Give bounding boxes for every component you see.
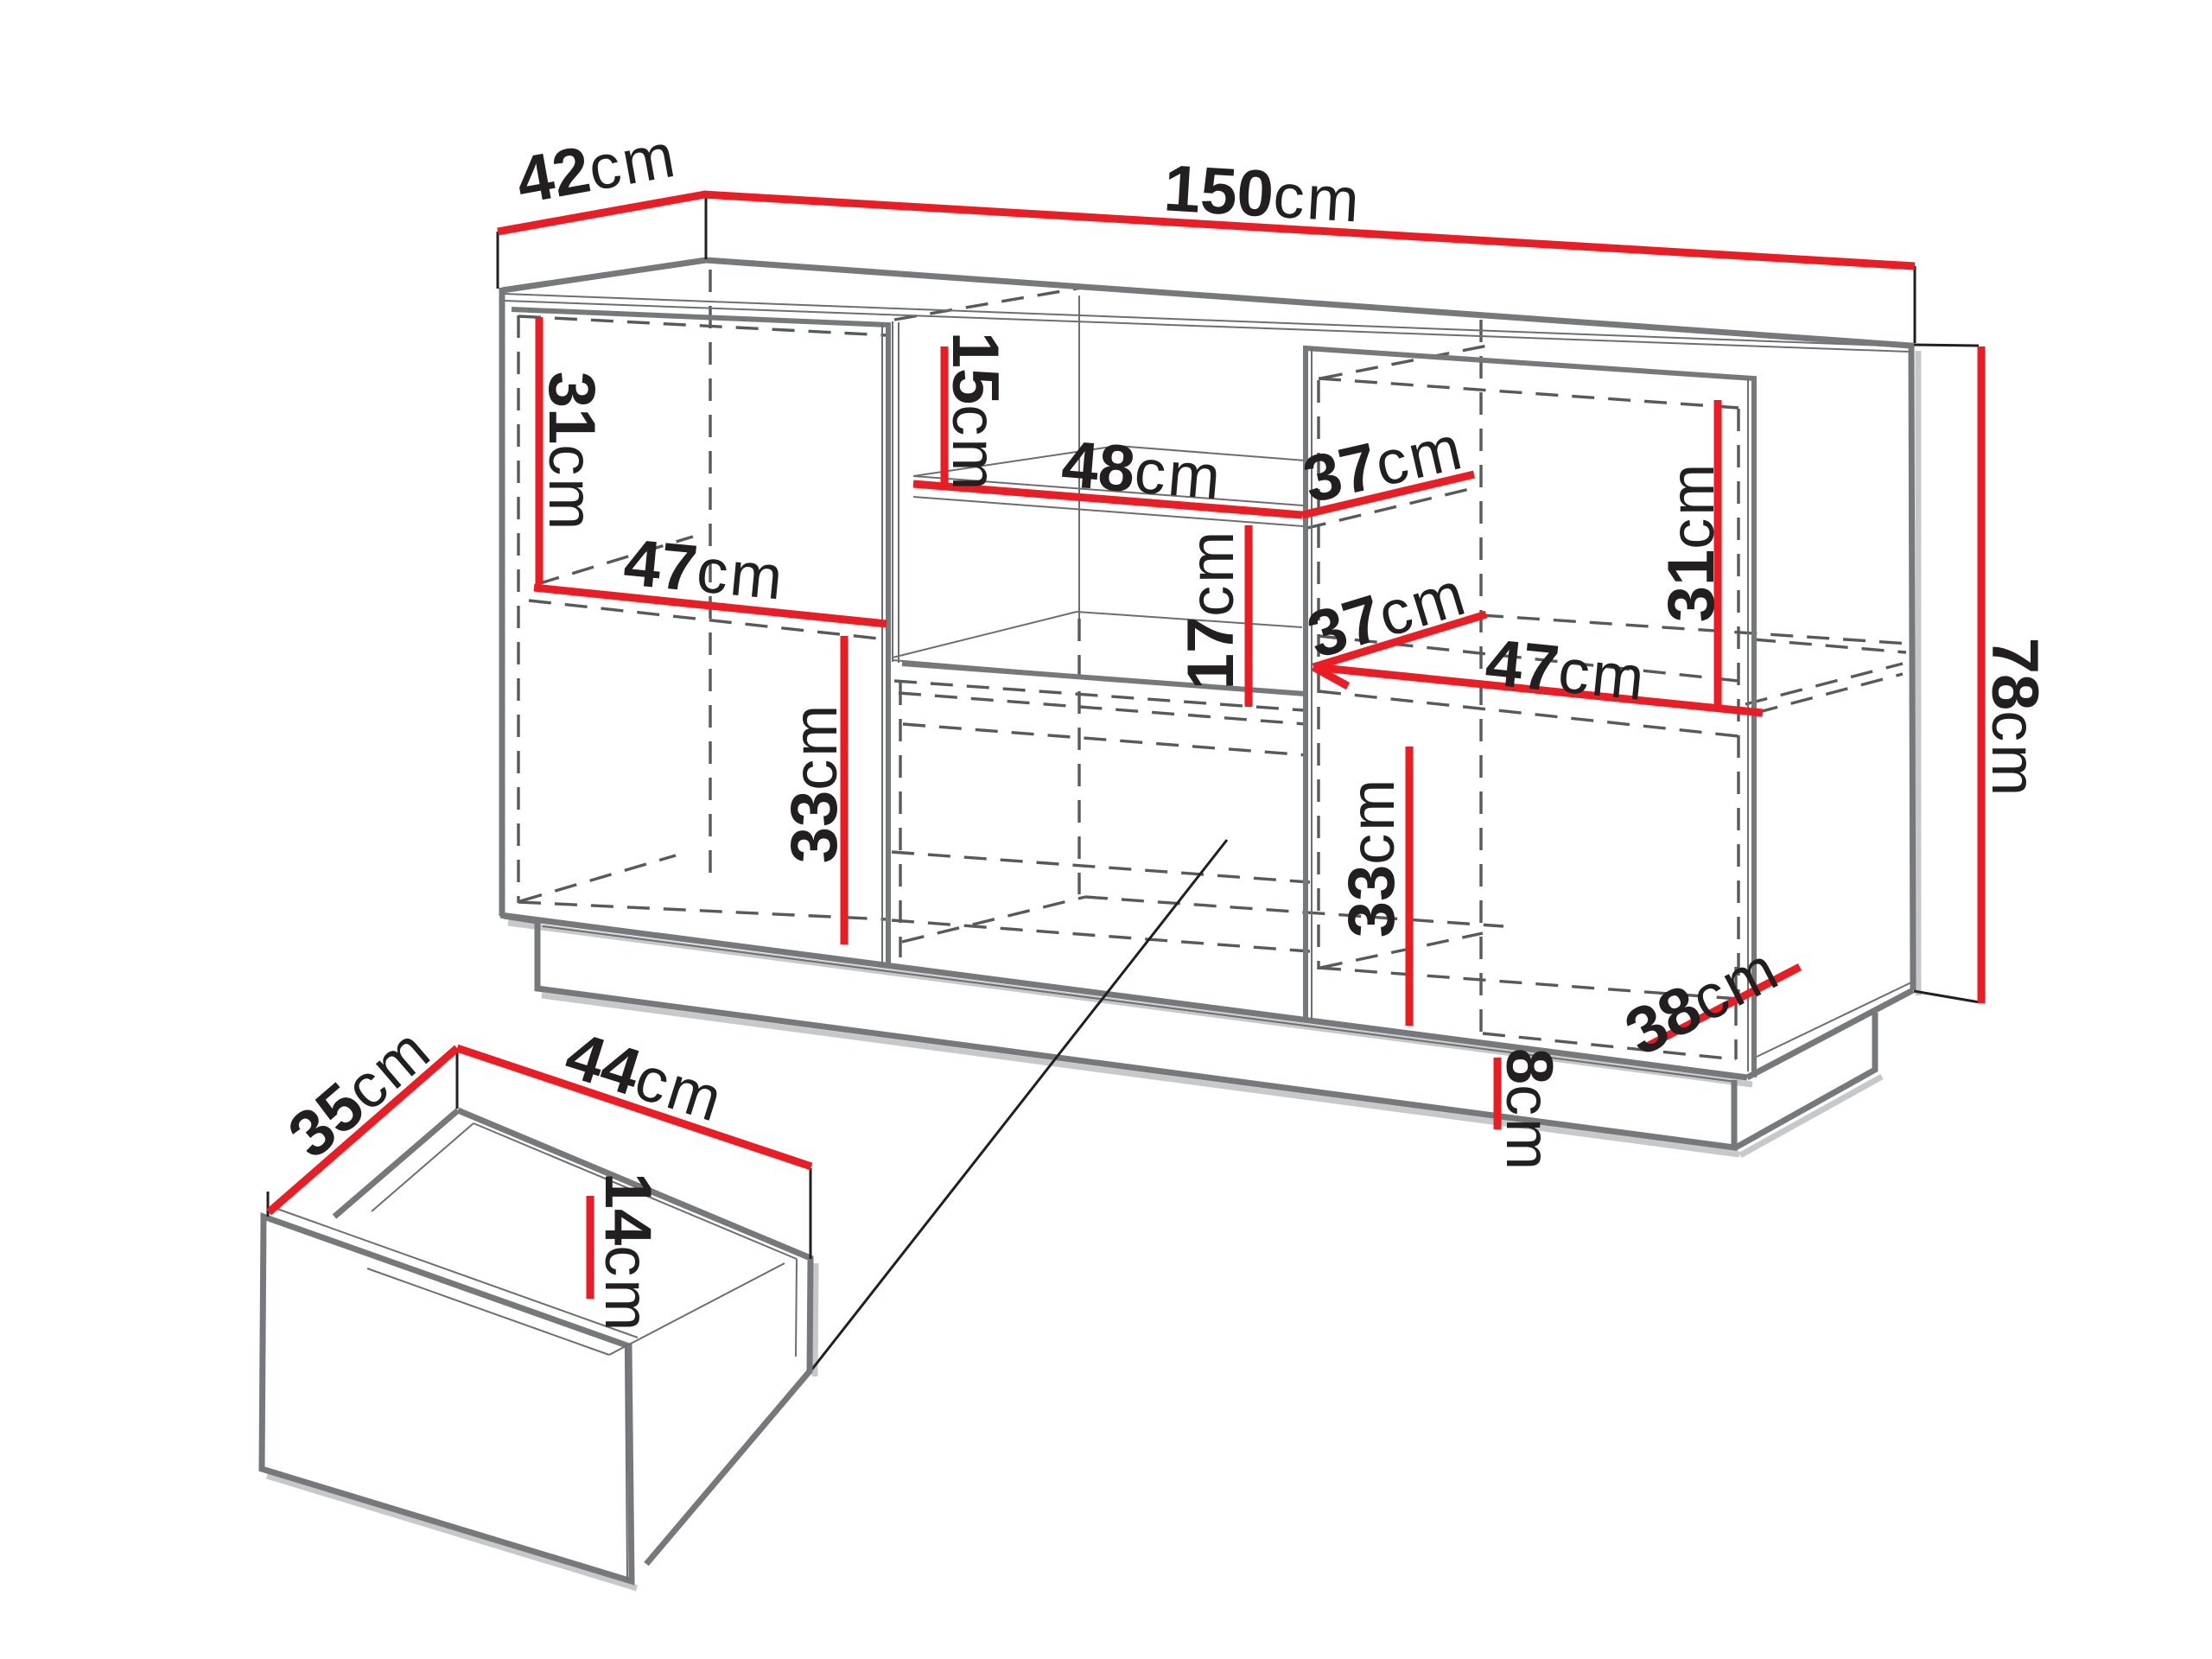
svg-text:14cm: 14cm (591, 1173, 664, 1334)
svg-text:8cm: 8cm (1492, 1048, 1566, 1173)
svg-text:33cm: 33cm (1335, 777, 1408, 938)
svg-text:31cm: 31cm (535, 372, 608, 533)
svg-text:78cm: 78cm (1978, 638, 2051, 799)
svg-text:17cm: 17cm (1174, 529, 1248, 690)
svg-text:31cm: 31cm (1655, 461, 1728, 623)
svg-text:150cm: 150cm (1162, 151, 1363, 236)
svg-text:33cm: 33cm (778, 702, 851, 864)
svg-text:15cm: 15cm (938, 332, 1012, 493)
